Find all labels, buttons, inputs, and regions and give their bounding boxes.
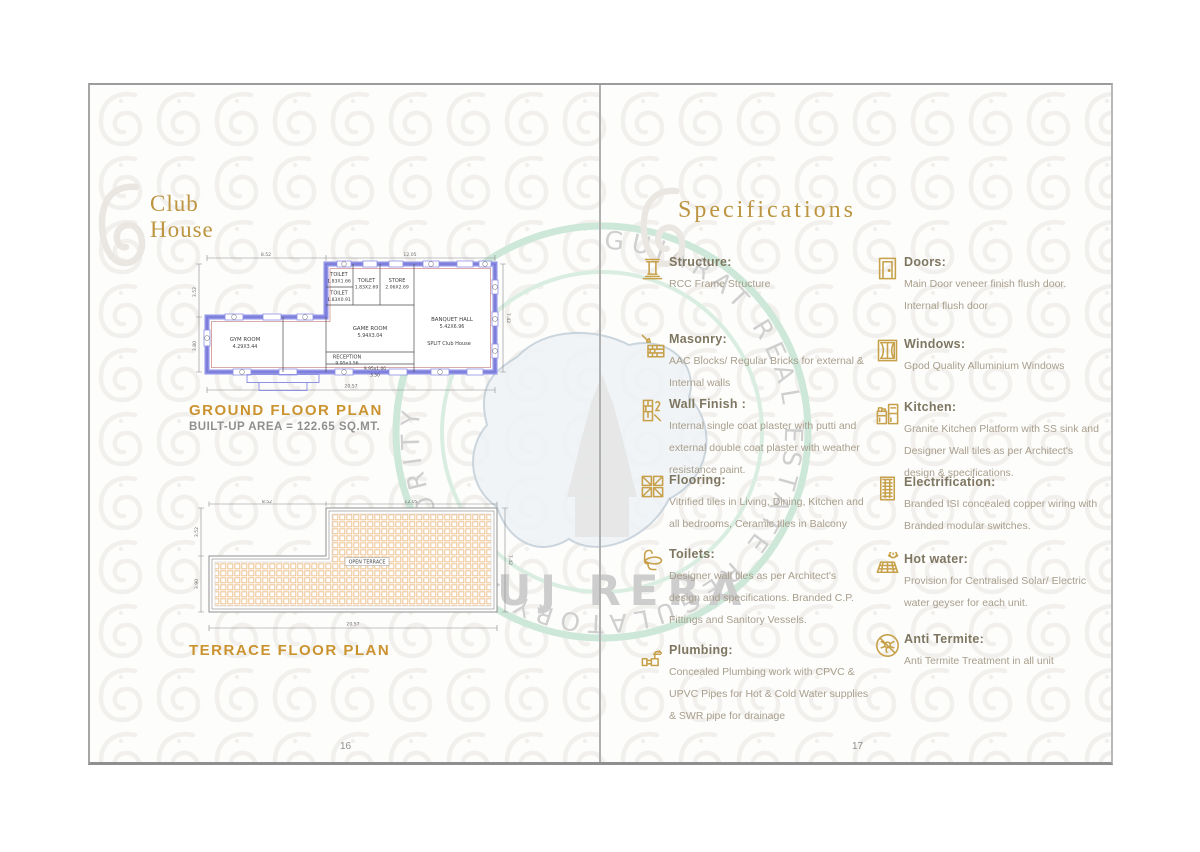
dim-bottom: 20.57 — [344, 384, 357, 390]
spec-heading: Flooring: — [669, 473, 884, 487]
spec-item-anti-termite: Anti Termite: Anti Termite Treatment in … — [874, 632, 1119, 672]
spec-item-doors: Doors: Main Door veneer finish flush doo… — [874, 255, 1119, 317]
spec-heading: Electrification: — [904, 475, 1119, 489]
page-gutter-divider — [599, 85, 601, 762]
spec-item-plumbing: Plumbing: Concealed Plumbing work with C… — [639, 643, 884, 727]
terrace-dim-left-upper: 3.52 — [194, 527, 200, 537]
club-house-title: Club House — [150, 191, 214, 244]
spec-item-electrification: Electrification: Branded ISI concealed c… — [874, 475, 1119, 537]
open-terrace-label: OPEN TERRACE — [349, 560, 386, 566]
svg-text:5.42X6.96: 5.42X6.96 — [440, 324, 465, 330]
spec-heading: Wall Finish : — [669, 397, 884, 411]
spec-heading: Doors: — [904, 255, 1119, 269]
ground-plan-porch-steps — [247, 375, 319, 391]
spec-heading: Anti Termite: — [904, 632, 1119, 646]
svg-text:3.50: 3.50 — [370, 373, 380, 379]
ground-floor-plan-title: GROUND FLOOR PLAN — [189, 402, 383, 419]
anti-termite-icon — [874, 632, 901, 659]
toilets-icon — [639, 547, 666, 574]
spec-item-masonry: Masonry: AAC Blocks/ Regular Bricks for … — [639, 332, 884, 394]
windows-icon — [874, 337, 901, 364]
spec-heading: Toilets: — [669, 547, 884, 561]
page-number-left: 16 — [340, 741, 351, 752]
structure-icon — [639, 255, 666, 282]
dim-left-upper: 3.52 — [192, 287, 198, 297]
terrace-dim-bottom: 20.57 — [346, 622, 359, 628]
spec-item-hot-water: Hot water: Provision for Centralised Sol… — [874, 552, 1119, 614]
doors-icon — [874, 255, 901, 282]
svg-text:TOILET: TOILET — [329, 272, 348, 278]
brochure-spread: GUJARAT REAL ESTATE REGULATORY AUTHORITY… — [88, 83, 1113, 765]
spec-item-flooring: Flooring: Vitrified tiles in Living, Din… — [639, 473, 884, 535]
kitchen-icon — [874, 400, 901, 427]
spec-item-toilets: Toilets: Designer wall tiles as per Arch… — [639, 547, 884, 631]
spec-body: Concealed Plumbing work with CPVC & UPVC… — [669, 661, 869, 727]
dim-left-lower: 3.80 — [192, 341, 198, 351]
svg-text:BANQUET HALL: BANQUET HALL — [431, 317, 473, 323]
club-house-title-line2: House — [150, 217, 214, 243]
spec-heading: Masonry: — [669, 332, 884, 346]
spec-body: Gpod Quality Alluminium Windows — [904, 355, 1104, 377]
spec-heading: Kitchen: — [904, 400, 1119, 414]
spec-body: Internal single coat plaster with putti … — [669, 415, 869, 481]
spec-body: Vitrified tiles in Living, Dining, Kitch… — [669, 491, 869, 535]
built-up-area-note: BUILT-UP AREA = 122.65 SQ.MT. — [189, 421, 380, 433]
spec-item-kitchen: Kitchen: Granite Kitchen Platform with S… — [874, 400, 1119, 484]
svg-text:1.83X0.91: 1.83X0.91 — [327, 297, 351, 303]
spec-heading: Hot water: — [904, 552, 1119, 566]
svg-text:2.06X2.69: 2.06X2.69 — [385, 285, 409, 291]
dim-right: 7.42 — [505, 313, 511, 323]
spec-body: RCC Frame Structure — [669, 273, 869, 295]
spec-body: Anti Termite Treatment in all unit — [904, 650, 1104, 672]
spec-item-wall-finish: Wall Finish : Internal single coat plast… — [639, 397, 884, 481]
svg-text:1.83X2.69: 1.83X2.69 — [355, 285, 379, 291]
svg-text:SPLIT Club House: SPLIT Club House — [427, 341, 471, 347]
svg-text:9.95x3.56: 9.95x3.56 — [335, 361, 358, 367]
masonry-icon — [639, 332, 666, 359]
electrification-icon — [874, 475, 901, 502]
spec-item-structure: Structure: RCC Frame Structure — [639, 255, 884, 295]
dim-top-left: 8.52 — [261, 252, 271, 258]
svg-text:STORE: STORE — [389, 278, 406, 284]
wall-finish-icon — [639, 397, 666, 424]
terrace-dim-top-right: 12.05 — [404, 500, 417, 505]
spec-body: Provision for Centralised Solar/ Electri… — [904, 570, 1104, 614]
hot-water-icon — [874, 552, 901, 579]
svg-text:1.83X1.66: 1.83X1.66 — [327, 279, 351, 285]
terrace-dim-left-lower: 3.90 — [194, 579, 200, 589]
terrace-floor-plan-title: TERRACE FLOOR PLAN — [189, 642, 390, 659]
ground-floor-plan-drawing: 8.52 12.05 3.52 3.80 7.42 20.57 3.79 — [185, 250, 530, 400]
spec-body: Main Door veneer finish flush door. Inte… — [904, 273, 1104, 317]
terrace-dim-right: 7.42 — [507, 555, 513, 565]
spec-heading: Plumbing: — [669, 643, 884, 657]
spec-heading: Structure: — [669, 255, 884, 269]
svg-text:RECEPTION: RECEPTION — [333, 355, 362, 361]
terrace-floor-plan-drawing: 8.52 12.05 3.52 3.90 7.42 20.57 OPEN TER… — [185, 500, 520, 640]
svg-text:4.29X3.44: 4.29X3.44 — [233, 344, 258, 350]
plumbing-icon — [639, 643, 666, 670]
spec-heading: Windows: — [904, 337, 1119, 351]
spec-body: AAC Blocks/ Regular Bricks for external … — [669, 350, 869, 394]
spec-item-windows: Windows: Gpod Quality Alluminium Windows — [874, 337, 1119, 377]
svg-text:TOILET: TOILET — [357, 278, 376, 284]
terrace-dim-top-left: 8.52 — [262, 500, 272, 505]
spec-body: Branded ISI concealed copper wiring with… — [904, 493, 1104, 537]
flooring-icon — [639, 473, 666, 500]
specifications-title: Specifications — [678, 197, 856, 224]
svg-text:GAME ROOM: GAME ROOM — [353, 326, 388, 332]
club-house-title-line1: Club — [150, 191, 214, 217]
title-swirl-ornament-left — [98, 181, 146, 269]
svg-text:GYM ROOM: GYM ROOM — [230, 337, 261, 343]
spec-body: Designer wall tiles as per Architect's d… — [669, 565, 869, 631]
dim-top-right: 12.05 — [403, 252, 416, 258]
page-number-right: 17 — [852, 741, 863, 752]
svg-text:9.95x1.00: 9.95x1.00 — [364, 366, 386, 372]
svg-text:5.94X3.04: 5.94X3.04 — [358, 333, 383, 339]
svg-text:TOILET: TOILET — [329, 291, 348, 297]
